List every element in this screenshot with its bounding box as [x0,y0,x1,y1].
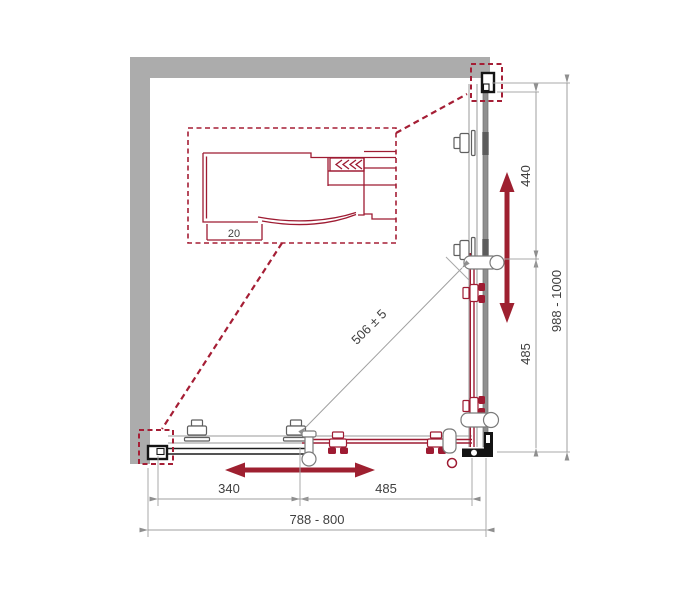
dim-line-diagonal [306,268,462,427]
slide-arrow-vertical [500,172,515,323]
door-handle-right-top [464,256,504,270]
gray-roller-3 [454,131,475,156]
red-roller-1 [328,432,348,454]
walls [130,57,490,464]
gray-roller-1 [185,420,210,441]
diagonal-dim-label: 506 ± 5 [348,306,389,347]
right-fixed-dim-label: 440 [518,165,533,187]
bottom-total-dim-label: 788 - 800 [290,512,345,527]
door-handle-bottom-corner [443,429,457,468]
callout-leader-bottom [162,243,282,429]
shower-enclosure-diagram: 20 340 485 788 - 800 440 [0,0,675,600]
right-total-dim-label: 988 - 1000 [549,270,564,332]
wall-top [130,57,490,78]
bottom-fixed-dim-label: 340 [218,481,240,496]
bottom-door-dim-label: 485 [375,481,397,496]
detail-dim-label: 20 [228,228,240,240]
fixed-glass-bottom [168,449,308,455]
detail-callout: 20 [162,94,467,429]
callout-leader-top [396,94,467,133]
door-handle-right-corner [461,413,499,428]
right-door-dim-label: 485 [518,343,533,365]
wall-left [130,57,150,464]
red-roller-3 [463,283,485,303]
drawing-canvas: 20 340 485 788 - 800 440 [0,0,675,600]
